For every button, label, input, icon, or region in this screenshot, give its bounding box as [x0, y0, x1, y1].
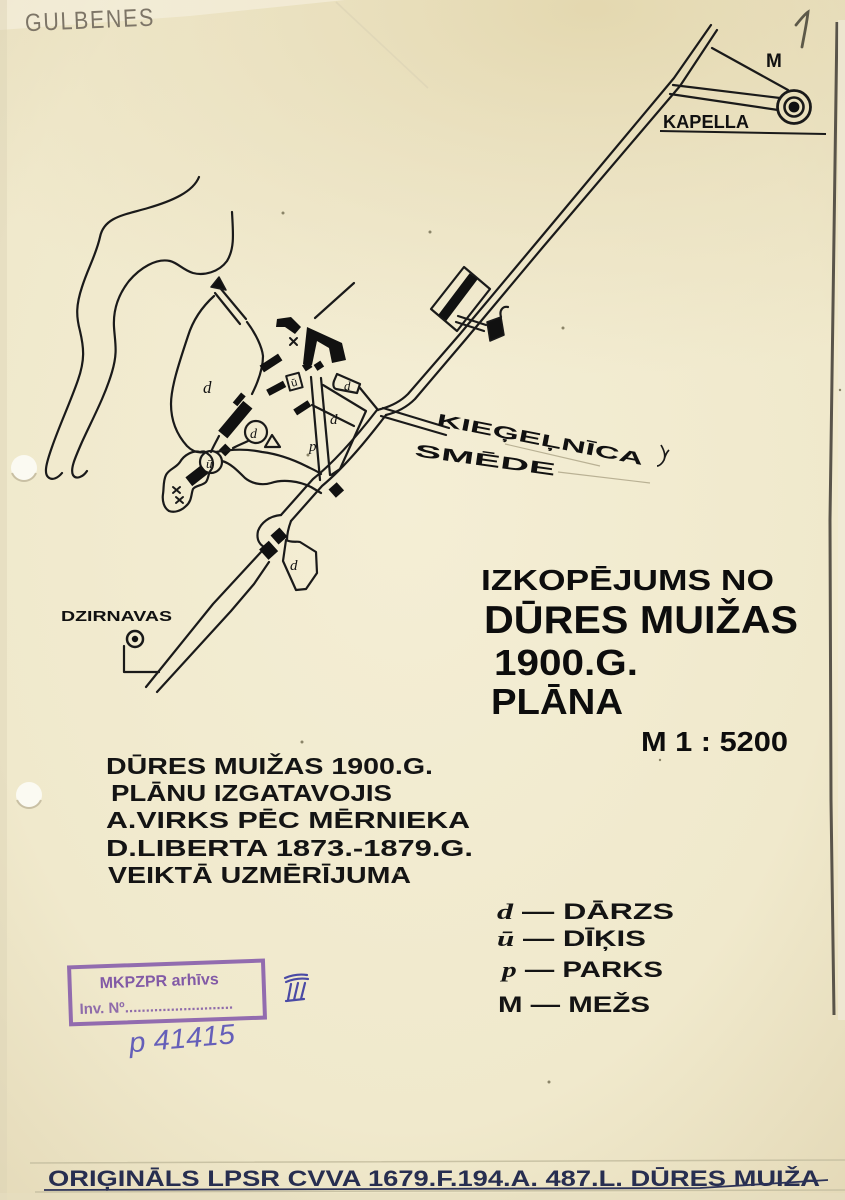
svg-text:PLĀNU IZGATAVOJIS: PLĀNU IZGATAVOJIS — [111, 780, 392, 806]
svg-text:IZKOPĒJUMS NO: IZKOPĒJUMS NO — [481, 565, 774, 597]
svg-text:M: M — [766, 51, 782, 72]
svg-text:KAPELLA: KAPELLA — [663, 112, 749, 132]
svg-text:PLĀNA: PLĀNA — [491, 681, 623, 722]
svg-text:d: d — [203, 378, 212, 397]
svg-text:d: d — [290, 558, 298, 574]
svg-text:1900.G.: 1900.G. — [494, 642, 638, 683]
svg-text:ū — DĪĶIS: ū — DĪĶIS — [497, 926, 646, 951]
svg-text:d: d — [250, 427, 258, 442]
svg-text:d: d — [344, 378, 351, 393]
svg-text:d: d — [330, 412, 338, 428]
svg-text:DŪRES MUIŽAS: DŪRES MUIŽAS — [484, 598, 798, 642]
svg-text:M — MEŽS: M — MEŽS — [498, 992, 650, 1017]
svg-text:DŪRES MUIŽAS 1900.G.: DŪRES MUIŽAS 1900.G. — [106, 752, 433, 779]
svg-text:M 1 : 5200: M 1 : 5200 — [641, 726, 788, 757]
svg-text:p: p — [308, 439, 317, 455]
svg-text:GULBENES: GULBENES — [24, 4, 155, 38]
svg-text:D.LIBERTA 1873.-1879.G.: D.LIBERTA 1873.-1879.G. — [106, 835, 473, 861]
svg-text:p — PARKS: p — PARKS — [499, 957, 663, 982]
svg-text:DZIRNAVAS: DZIRNAVAS — [61, 608, 172, 625]
svg-text:d — DĀRZS: d — DĀRZS — [497, 899, 674, 924]
svg-text:VEIKTĀ UZMĒRĪJUMA: VEIKTĀ UZMĒRĪJUMA — [108, 862, 411, 888]
svg-text:A.VIRKS PĒC MĒRNIEKA: A.VIRKS PĒC MĒRNIEKA — [106, 807, 470, 833]
